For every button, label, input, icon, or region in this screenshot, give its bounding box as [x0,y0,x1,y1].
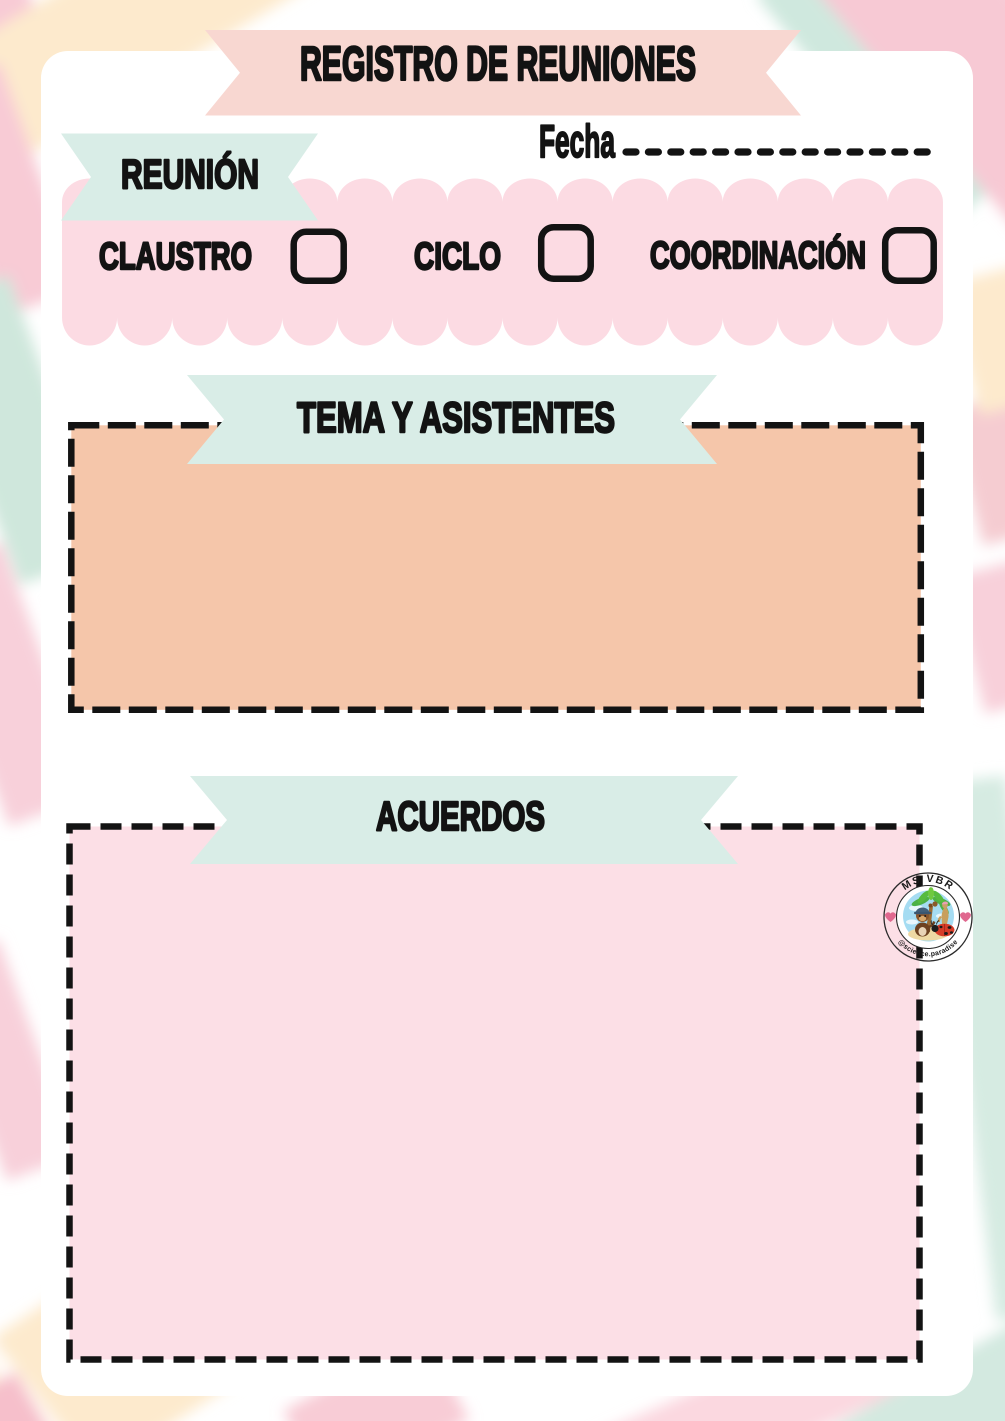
svg-text:REUNIÓN: REUNIÓN [121,151,259,197]
svg-text:TEMA Y ASISTENTES: TEMA Y ASISTENTES [297,394,615,442]
svg-text:ACUERDOS: ACUERDOS [376,793,545,839]
svg-text:COORDINACIÓN: COORDINACIÓN [650,233,866,277]
svg-text:CLAUSTRO: CLAUSTRO [99,236,252,278]
svg-text:REGISTRO DE REUNIONES: REGISTRO DE REUNIONES [300,38,696,91]
svg-text:CICLO: CICLO [414,236,501,278]
svg-text:Fecha: Fecha [539,115,615,167]
